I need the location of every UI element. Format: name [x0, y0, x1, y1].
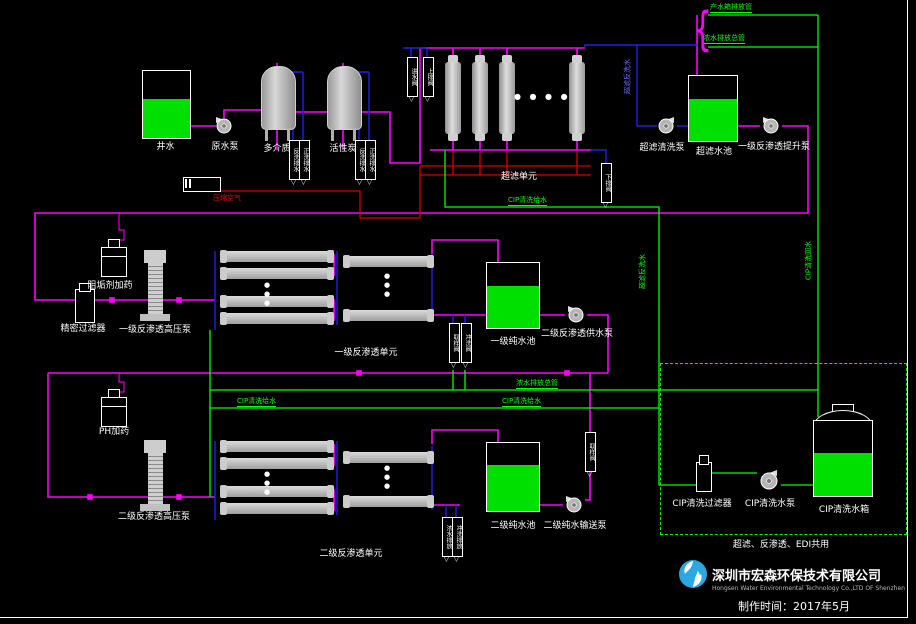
- ph-dosing-label: PH加药: [94, 427, 134, 438]
- cip-shared-label: 超滤、反渗透、EDI共用: [726, 540, 836, 551]
- company-name-en: Hongsen Water Environmental Technology C…: [712, 585, 905, 592]
- drawing-frame-bottom: [0, 617, 908, 618]
- ro2-membrane-vessel[interactable]: [222, 486, 332, 497]
- activated-carbon-vessel[interactable]: [327, 66, 362, 130]
- uf-module[interactable]: [569, 62, 585, 134]
- cip-feed-label-mid: CIP清洗给水: [502, 397, 541, 407]
- company-name-cn: 深圳市宏森环保技术有限公司: [712, 565, 881, 584]
- cip-feed-label-left: CIP清洗给水: [237, 397, 276, 407]
- uf-backwash-label-blue: 超滤反洗水: [624, 55, 633, 99]
- cip-feed-label-uf: CIP清洗给水: [508, 196, 547, 206]
- ac-filter-label: 活性炭: [320, 144, 366, 155]
- ro2-pure-water-tank[interactable]: [486, 442, 540, 512]
- conc-drain-main-label: 浓水排放总管: [516, 379, 558, 389]
- ph-dosing-tank[interactable]: [101, 397, 127, 427]
- air-compressor[interactable]: [183, 177, 221, 192]
- pipe-group-brace: {: [693, 6, 712, 52]
- ro2-membrane-vessel[interactable]: [222, 503, 332, 514]
- ro1-tank-label: 一级纯水池: [490, 337, 536, 348]
- uf-module[interactable]: [499, 62, 515, 134]
- ro2-membrane-vessel[interactable]: [345, 496, 432, 507]
- drawing-frame-right: [907, 0, 908, 618]
- raw-water-tank[interactable]: [142, 70, 191, 139]
- uf-module[interactable]: [445, 62, 461, 134]
- mm-rinse-valve[interactable]: 正洗排水: [299, 140, 310, 180]
- uf-water-tank[interactable]: [688, 75, 738, 142]
- made-date: 制作时间：2017年5月: [738, 598, 850, 614]
- uf-tank-label: 超滤水池: [694, 147, 734, 158]
- ro2-transfer-pump-icon: [566, 496, 581, 512]
- raw-pump-label: 原水泵: [203, 142, 247, 153]
- company-logo: [677, 558, 709, 590]
- ro1-membrane-vessel[interactable]: [345, 310, 432, 321]
- pure2-sample-valve[interactable]: 取样阀: [585, 432, 596, 472]
- ro1-lift-pump-label: 一级反渗透提升泵: [736, 142, 812, 153]
- cartridge-filter-label: 精密过滤器: [58, 324, 108, 335]
- ro2-tank-label: 二级纯水池: [490, 521, 536, 532]
- ro1-flush-valve[interactable]: 冲洗阀: [461, 323, 472, 363]
- ac-rinse-valve[interactable]: 正洗排水: [365, 140, 376, 180]
- ro2-hp-pump-label: 二级反渗透高压泵: [116, 512, 192, 523]
- product-drain-pipe-label: 产水箱排放管: [710, 3, 752, 13]
- ro1-hp-pump-icon[interactable]: [144, 250, 166, 263]
- cartridge-filter[interactable]: [75, 289, 95, 323]
- ro1-membrane-vessel[interactable]: [222, 268, 332, 279]
- cip-return-label: CIP清洗回水: [805, 239, 814, 283]
- cip-tank-label: CIP清洗水箱: [817, 505, 871, 516]
- ro2-membrane-vessel[interactable]: [222, 458, 332, 469]
- ro1-membrane-vessel[interactable]: [222, 251, 332, 262]
- uf-clean-pump-label: 超滤清洗泵: [637, 143, 687, 154]
- uf-bottom-drain-valve[interactable]: 下排阀: [601, 163, 612, 203]
- cip-filter-label: CIP清洗过滤器: [671, 499, 733, 510]
- ro1-membrane-vessel[interactable]: [345, 256, 432, 267]
- ro2-transfer-pump-label: 二级纯水输送泵: [543, 521, 607, 532]
- ro1-sample-valve[interactable]: 取样阀: [449, 323, 460, 363]
- antiscalant-dosing-tank[interactable]: [101, 247, 127, 277]
- process-flow-diagram: ● ● ● ● ●●● ●●● ●●● ●●● 反洗排水 ▽ 正洗排水 ▽ 反洗…: [0, 0, 916, 624]
- ro1-lift-pump-icon: [763, 117, 778, 133]
- ro1-pure-water-tank[interactable]: [486, 262, 540, 329]
- mm-filter-label: 多介质: [254, 144, 300, 155]
- ro2-membrane-vessel[interactable]: [345, 452, 432, 463]
- ro2-hp-pump-icon[interactable]: [144, 440, 166, 453]
- ro2-feed-pump-label: 二级反渗透供水泵: [539, 329, 615, 340]
- uf-module[interactable]: [472, 62, 488, 134]
- raw-water-pump-icon: [216, 117, 231, 133]
- ro1-hp-pump-label: 一级反渗透高压泵: [117, 325, 193, 336]
- uf-backwash-label-green: 超滤反洗水: [639, 250, 648, 294]
- ro1-membrane-vessel[interactable]: [222, 313, 332, 324]
- ro2-feed-pump-icon: [568, 306, 583, 322]
- multimedia-filter-vessel[interactable]: [261, 66, 296, 130]
- uf-inlet-valve[interactable]: 进水阀: [407, 57, 418, 97]
- antiscalant-label: 阻垢剂加药: [85, 281, 135, 292]
- compressor-hatch: [185, 179, 193, 188]
- ro2-flush-drain-valve[interactable]: 冲洗排放: [452, 517, 463, 557]
- cip-pump-label: CIP清洗水泵: [744, 499, 796, 510]
- well-water-label: 井水: [142, 142, 189, 153]
- ro2-unit-label: 二级反渗透单元: [318, 549, 384, 560]
- ro1-membrane-vessel[interactable]: [222, 296, 332, 307]
- air-drain-pipes: [219, 152, 591, 218]
- uf-cleaning-pump-icon: [659, 117, 674, 133]
- ro1-unit-label: 一级反渗透单元: [333, 348, 399, 359]
- ro2-membrane-vessel[interactable]: [222, 441, 332, 452]
- uf-top-drain-valve[interactable]: 上排阀: [423, 57, 434, 97]
- compressed-air-label: 压缩空气: [213, 194, 241, 202]
- uf-ellipsis-dots: ● ● ● ●: [514, 92, 571, 101]
- uf-unit-label: 超滤单元: [480, 172, 558, 183]
